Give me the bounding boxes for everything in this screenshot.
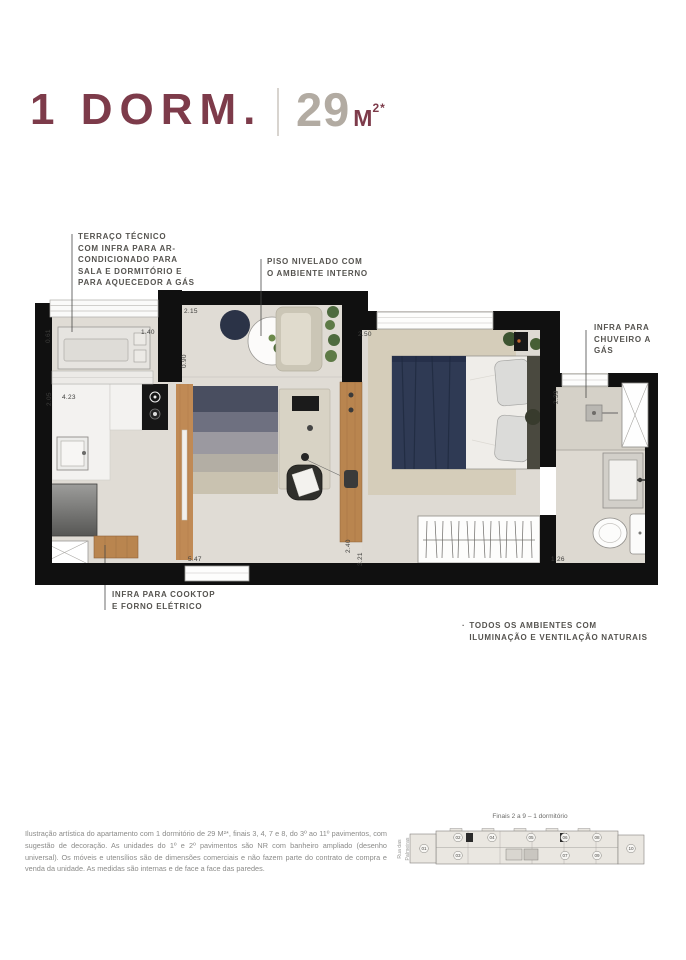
shower-glass (622, 383, 648, 447)
terrace-door (52, 371, 153, 384)
desk-chair (287, 465, 322, 500)
sofa (276, 307, 322, 371)
terrace-louver (50, 300, 158, 317)
page-title: 1 DORM. (30, 86, 262, 134)
unit-03: 03 (455, 853, 461, 858)
bullet-dot: · (462, 620, 465, 643)
unit-08: 08 (594, 835, 600, 840)
wood-bench (94, 536, 138, 558)
striped-rug (193, 386, 278, 494)
keyplan: Finais 2 a 9 – 1 dormitório Rua das Palm… (397, 813, 644, 864)
unit-09: 09 (594, 853, 600, 858)
area-label: 29 M2* (296, 84, 386, 136)
unit-05: 05 (528, 835, 534, 840)
dim-bathroom-depth: 2.39 (553, 390, 560, 404)
kitchen-sink (57, 437, 88, 470)
wood-counter (340, 382, 362, 542)
note-piso-nivelado: PISO NIVELADO COM O AMBIENTE INTERNO (267, 256, 368, 279)
unit-01: 01 (421, 846, 427, 851)
wood-floor-strip (176, 384, 193, 560)
dim-entry-width: 2.15 (184, 308, 198, 315)
keyplan-building (410, 829, 644, 865)
floor-plan: 0.61 1.40 2.15 0.90 2.50 2.39 2.05 4.23 … (0, 0, 686, 960)
dim-bedroom-width: 2.50 (358, 331, 372, 338)
bed (392, 356, 544, 469)
note-terraco-tecnico: TERRAÇO TÉCNICO COM INFRA PARA AR- CONDI… (78, 231, 195, 289)
brochure-page: 0.61 1.40 2.15 0.90 2.50 2.39 2.05 4.23 … (0, 0, 686, 960)
note-ambientes: · TODOS OS AMBIENTES COM ILUMINAÇÃO E VE… (462, 620, 648, 643)
unit-06: 06 (562, 835, 568, 840)
unit-07: 07 (562, 853, 568, 858)
title-divider (277, 88, 279, 136)
closet (418, 516, 540, 563)
unit-04: 04 (489, 835, 495, 840)
bathroom-door-gap (540, 467, 556, 515)
area-value: 29 (296, 84, 350, 136)
note-ambientes-text: TODOS OS AMBIENTES COM ILUMINAÇÃO E VENT… (469, 620, 647, 643)
dim-entry-depth: 0.90 (181, 354, 188, 368)
dim-terrace-depth: 0.61 (45, 329, 52, 343)
navy-pouf (220, 310, 250, 340)
dim-counter-length: 2.40 (345, 539, 352, 553)
dim-bathroom-width: 1.26 (551, 556, 565, 563)
dim-bedroom-length: 3.21 (357, 552, 364, 566)
area-unit: M2* (353, 101, 386, 132)
area-superscript: 2* (372, 101, 385, 115)
oven-appliance (49, 484, 97, 536)
dim-kitchen-depth: 2.05 (46, 392, 53, 406)
dim-terrace-width: 1.40 (141, 329, 155, 336)
cooktop (142, 384, 168, 430)
bathroom-window (562, 374, 608, 386)
dim-living-length: 5.47 (188, 556, 202, 563)
keyplan-caption: Finais 2 a 9 – 1 dormitório (492, 813, 568, 820)
note-infra-chuveiro: INFRA PARA CHUVEIRO A GÁS (594, 322, 651, 357)
dim-kitchen-width: 4.23 (62, 394, 76, 401)
unit-10: 10 (628, 846, 634, 851)
unit-02: 02 (455, 835, 461, 840)
legal-disclaimer: Ilustração artística do apartamento com … (25, 828, 387, 875)
bath-sink (603, 453, 650, 508)
living-window (185, 566, 249, 581)
bedroom-window (377, 312, 493, 329)
ac-unit (58, 327, 150, 369)
street-label-line1: Rua das (397, 839, 403, 859)
note-infra-cooktop: INFRA PARA COOKTOP E FORNO ELÉTRICO (112, 589, 215, 612)
